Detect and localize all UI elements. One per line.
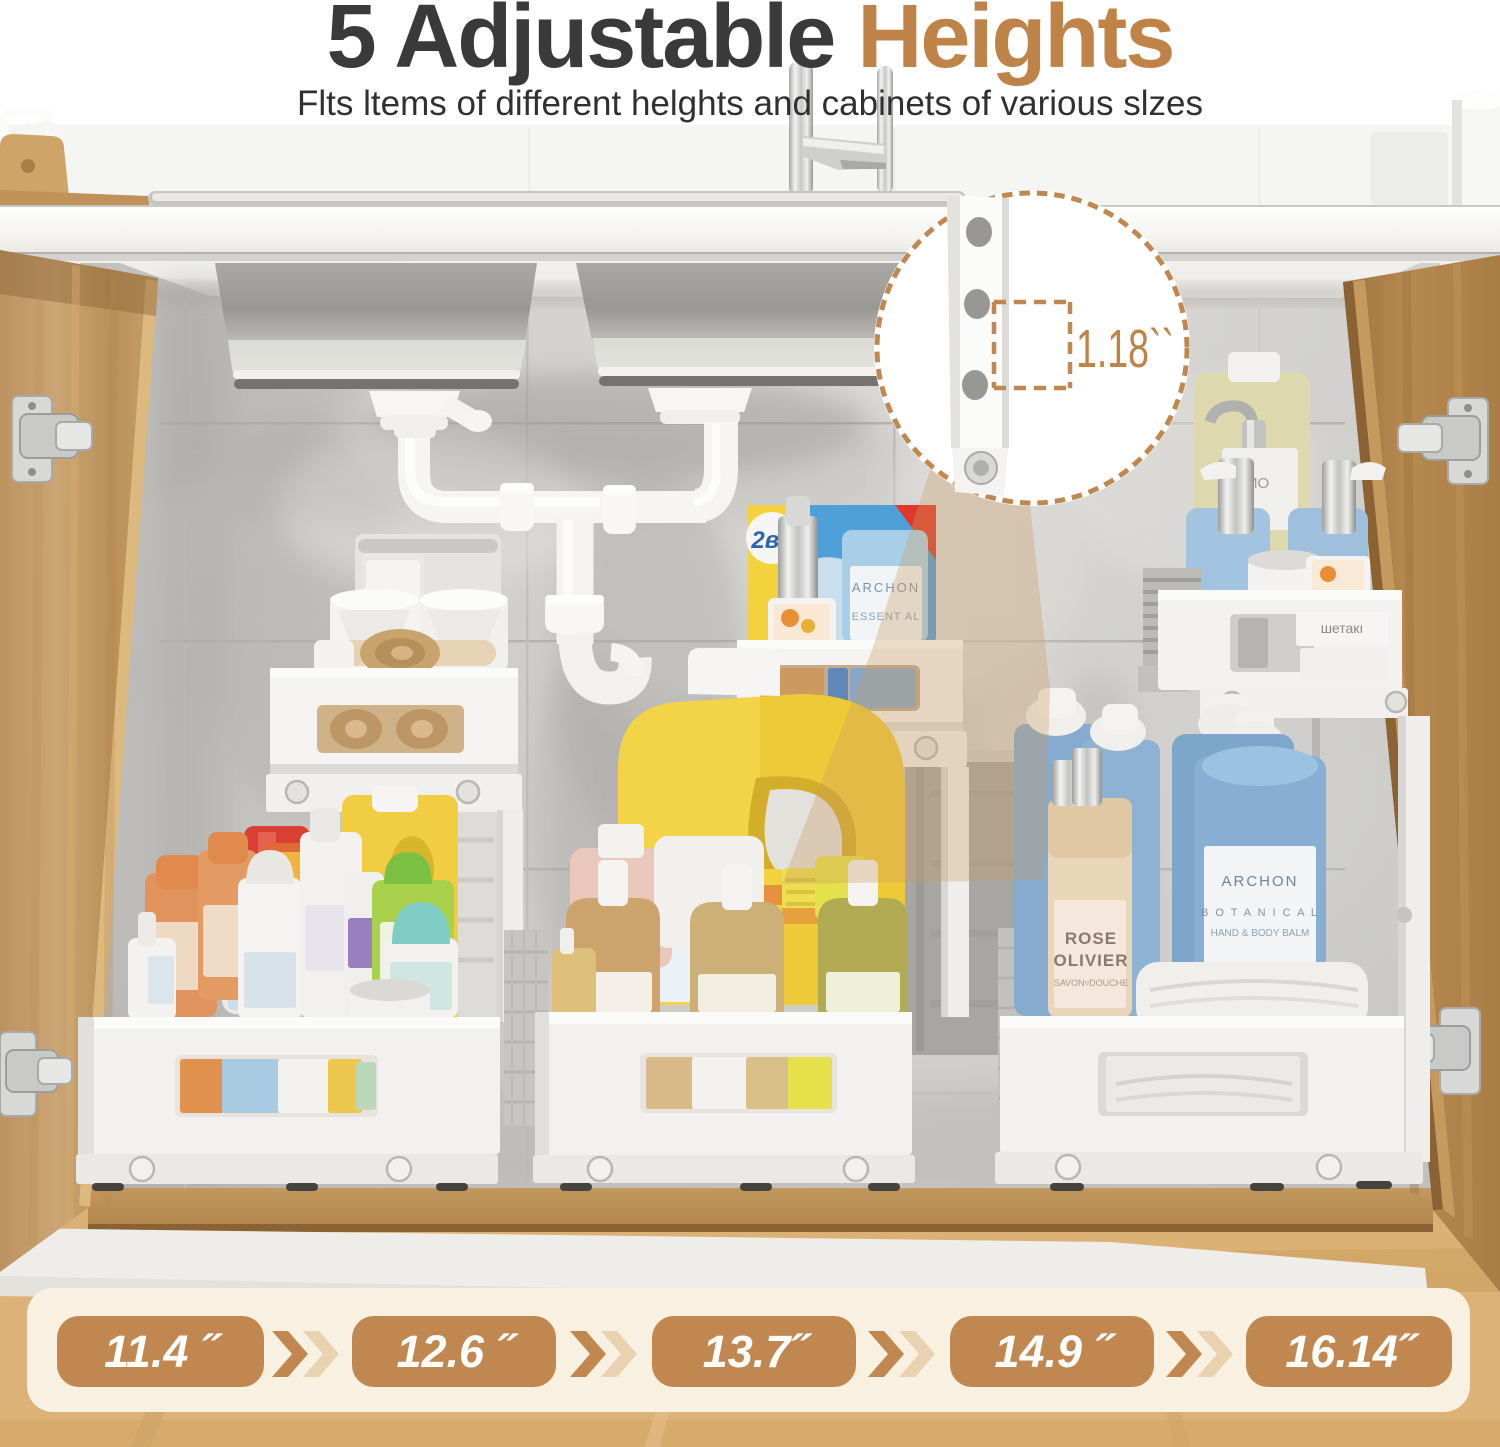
- svg-text:11.4 ˝: 11.4 ˝: [104, 1326, 223, 1377]
- svg-text:ROSE: ROSE: [1065, 929, 1117, 948]
- svg-text:ARCHON: ARCHON: [1221, 873, 1298, 890]
- svg-text:12.6 ˝: 12.6 ˝: [396, 1326, 518, 1377]
- svg-text:B O T A N I C A L: B O T A N I C A L: [1201, 907, 1319, 919]
- svg-text:шетакı: шетакı: [1321, 620, 1364, 636]
- svg-text:SAVON▿DOUCHE: SAVON▿DOUCHE: [1054, 978, 1128, 988]
- svg-text:14.9 ˝: 14.9 ˝: [994, 1326, 1116, 1377]
- svg-text:13.7˝: 13.7˝: [703, 1326, 813, 1377]
- svg-text:16.14˝: 16.14˝: [1285, 1326, 1420, 1377]
- svg-text:OLIVIER: OLIVIER: [1053, 951, 1128, 970]
- svg-text:HAND & BODY BALM: HAND & BODY BALM: [1211, 928, 1310, 939]
- svg-text:1.18``: 1.18``: [1076, 319, 1174, 379]
